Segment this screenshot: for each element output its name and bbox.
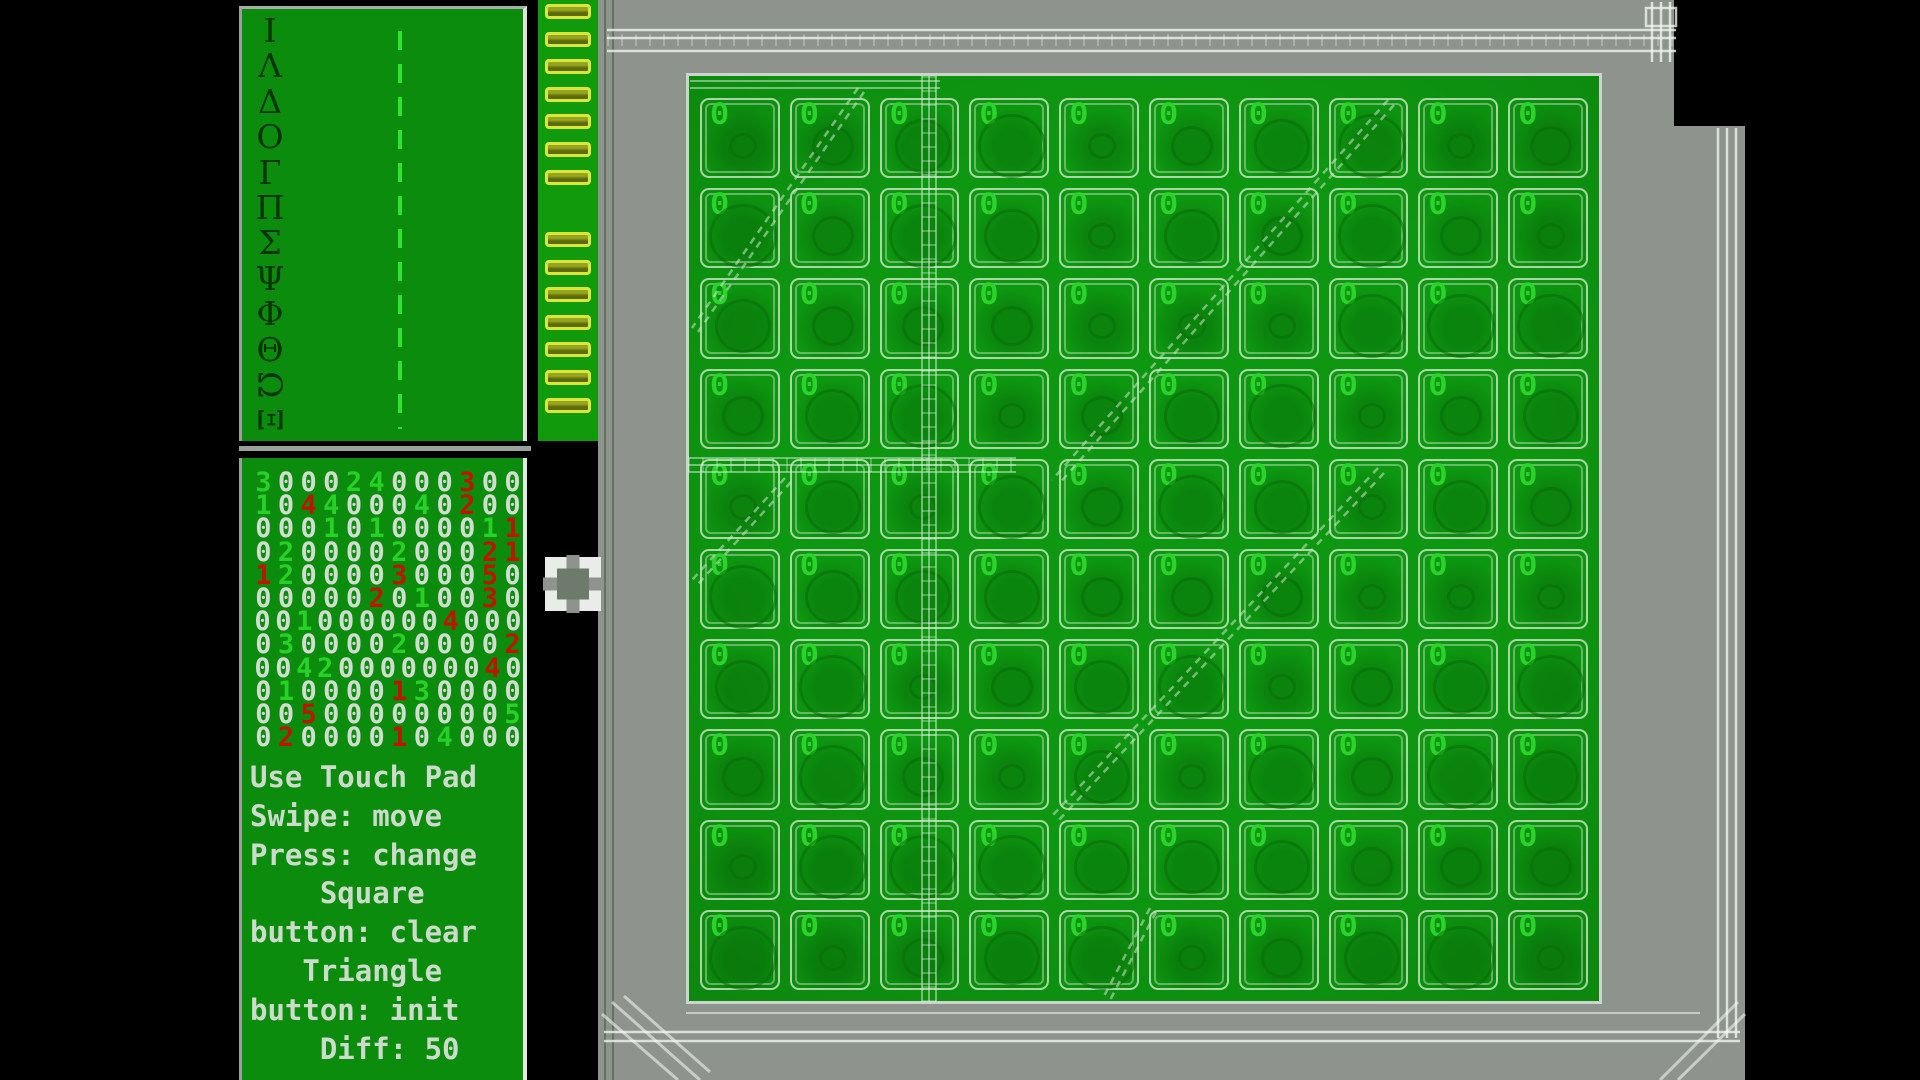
board-cell[interactable]: 0 — [790, 98, 870, 178]
board-cell[interactable]: 0 — [790, 278, 870, 358]
cell-value: 0 — [1518, 97, 1537, 134]
cell-ring — [1088, 223, 1116, 249]
cell-ring — [812, 216, 854, 256]
cell-ring — [889, 204, 957, 268]
cell-ring — [1178, 764, 1206, 790]
cell-ring — [709, 565, 777, 629]
board-cell[interactable]: 0 — [969, 549, 1049, 629]
board-cell[interactable]: 0 — [700, 729, 780, 809]
board-cell[interactable]: 0 — [1508, 639, 1588, 719]
cell-value: 0 — [1428, 368, 1447, 405]
connector-pin — [545, 287, 591, 302]
cell-value: 0 — [890, 909, 909, 946]
board-cell[interactable]: 0 — [1418, 820, 1498, 900]
board-cell[interactable]: 0 — [1149, 188, 1229, 268]
cell-ring — [819, 945, 847, 971]
board-cell[interactable]: 0 — [700, 98, 780, 178]
board-cell[interactable]: 0 — [1418, 729, 1498, 809]
cell-ring — [805, 480, 861, 534]
board-cell[interactable]: 0 — [969, 98, 1049, 178]
cell-value: 0 — [1428, 548, 1447, 585]
board-cell[interactable]: 0 — [700, 459, 780, 539]
cell-value: 0 — [1159, 728, 1178, 765]
cell-ring — [1427, 294, 1495, 358]
cell-ring — [1338, 114, 1406, 178]
greek-letter: Ω — [252, 367, 287, 403]
board-cell[interactable]: 0 — [880, 188, 960, 268]
board-cell[interactable]: 0 — [1239, 188, 1319, 268]
board-cell[interactable]: 0 — [1329, 910, 1409, 990]
cell-ring — [1261, 577, 1303, 617]
greek-letter: Ξ — [252, 402, 287, 438]
connector-pin — [545, 4, 591, 19]
board-cell[interactable]: 0 — [700, 639, 780, 719]
connector-pin — [545, 87, 591, 102]
cell-value: 0 — [1069, 187, 1088, 224]
board-cell[interactable]: 0 — [1059, 459, 1139, 539]
board-cell[interactable]: 0 — [1149, 910, 1229, 990]
board-cell[interactable]: 0 — [1149, 820, 1229, 900]
cell-value: 0 — [1249, 638, 1268, 675]
cell-ring — [1158, 475, 1226, 539]
board-cell[interactable]: 0 — [1508, 459, 1588, 539]
cell-ring — [1440, 216, 1482, 256]
cell-ring — [799, 745, 867, 809]
instruction-line: Diff: 50 — [250, 1030, 477, 1069]
board-cell[interactable]: 0 — [880, 549, 960, 629]
cell-ring — [895, 119, 951, 173]
board-cell[interactable]: 0 — [1329, 459, 1409, 539]
instruction-line: Swipe: move — [250, 797, 477, 836]
cell-value: 0 — [1249, 187, 1268, 224]
cell-ring — [805, 389, 861, 443]
board-cell[interactable]: 0 — [1059, 729, 1139, 809]
cell-ring — [1344, 931, 1400, 985]
cell-ring — [1178, 945, 1206, 971]
status-digit: 0 — [501, 726, 524, 749]
connector-pin — [545, 342, 591, 357]
board-cell[interactable]: 0 — [1059, 369, 1139, 449]
cell-ring — [998, 764, 1026, 790]
status-digit: 0 — [320, 726, 343, 749]
cell-ring — [1358, 584, 1386, 610]
connector-pin — [545, 315, 591, 330]
board-cell[interactable]: 0 — [1059, 549, 1139, 629]
cell-value: 0 — [1069, 458, 1088, 495]
board-cell[interactable]: 0 — [1059, 98, 1139, 178]
board-cell[interactable]: 0 — [1508, 729, 1588, 809]
board-cell[interactable]: 0 — [1239, 729, 1319, 809]
cell-ring — [715, 660, 771, 714]
cell-ring — [902, 306, 944, 346]
board-cell[interactable]: 0 — [969, 188, 1049, 268]
cell-ring — [909, 494, 937, 520]
board-cell[interactable]: 0 — [1508, 188, 1588, 268]
board-cell[interactable]: 0 — [1149, 729, 1229, 809]
board-cell[interactable]: 0 — [1329, 369, 1409, 449]
board-cell[interactable]: 0 — [1329, 639, 1409, 719]
cell-ring — [1351, 847, 1393, 887]
connector-pin — [545, 398, 591, 413]
cell-value: 0 — [890, 458, 909, 495]
greek-letter: Π — [252, 190, 288, 225]
board-cell[interactable]: 0 — [1059, 188, 1139, 268]
cell-ring — [909, 674, 937, 700]
connector-pin — [545, 170, 591, 185]
board-cell[interactable]: 0 — [969, 820, 1049, 900]
cell-value: 0 — [1249, 909, 1268, 946]
board-cell[interactable]: 0 — [1149, 369, 1229, 449]
connector-pin — [545, 232, 591, 247]
cell-value: 0 — [800, 97, 819, 134]
cell-ring — [1517, 294, 1585, 358]
cell-value: 0 — [800, 277, 819, 314]
cell-value: 0 — [710, 458, 729, 495]
cell-ring — [1530, 487, 1572, 527]
board-cell[interactable]: 0 — [880, 278, 960, 358]
cell-ring — [805, 570, 861, 624]
cell-value: 0 — [1249, 548, 1268, 585]
cell-value: 0 — [1339, 819, 1358, 856]
cell-ring — [1254, 840, 1310, 894]
touchpad-instructions: Use Touch PadSwipe: movePress: change Sq… — [250, 758, 477, 1068]
cell-value: 0 — [1518, 909, 1537, 946]
cell-value: 0 — [1518, 458, 1537, 495]
greek-letter: Φ — [252, 296, 288, 331]
cell-value: 0 — [1339, 638, 1358, 675]
cell-value: 0 — [890, 277, 909, 314]
cell-value: 0 — [1069, 368, 1088, 405]
digit-row: 020000104000 — [252, 726, 524, 749]
game-board: 0000000000000000000000000000000000000000… — [686, 73, 1602, 1004]
cell-ring — [1447, 133, 1475, 159]
cell-ring — [902, 938, 944, 978]
cell-value: 0 — [979, 638, 998, 675]
board-cell[interactable]: 0 — [969, 639, 1049, 719]
board-cell[interactable]: 0 — [1239, 549, 1319, 629]
cell-value: 0 — [1159, 277, 1178, 314]
cell-value: 0 — [1339, 458, 1358, 495]
board-cell[interactable]: 0 — [1508, 549, 1588, 629]
board-cell[interactable]: 0 — [1418, 278, 1498, 358]
cell-ring — [799, 655, 867, 719]
dashed-divider-line — [398, 31, 402, 429]
cell-ring — [1440, 396, 1482, 436]
greek-letter: Θ — [252, 332, 288, 367]
instruction-line: button: init — [250, 991, 477, 1030]
cell-value: 0 — [800, 187, 819, 224]
selection-bracket-icon[interactable] — [545, 557, 601, 611]
cell-ring — [1171, 577, 1213, 617]
board-cell[interactable]: 0 — [790, 459, 870, 539]
cell-ring — [1074, 840, 1130, 894]
board-cell[interactable]: 0 — [1149, 459, 1229, 539]
cell-value: 0 — [710, 97, 729, 134]
board-cell[interactable]: 0 — [1329, 729, 1409, 809]
cell-value: 0 — [1428, 97, 1447, 134]
board-cell[interactable]: 0 — [880, 459, 960, 539]
instruction-line: Triangle — [250, 952, 477, 991]
cell-value: 0 — [1159, 909, 1178, 946]
cell-ring — [902, 757, 944, 797]
board-cell[interactable]: 0 — [1329, 98, 1409, 178]
board-cell[interactable]: 0 — [1239, 639, 1319, 719]
cell-ring — [1517, 655, 1585, 719]
cell-ring — [1427, 926, 1495, 990]
board-cell[interactable]: 0 — [1149, 98, 1229, 178]
cell-value: 0 — [1069, 97, 1088, 134]
greek-letter: Σ — [252, 225, 288, 260]
board-cell[interactable]: 0 — [790, 639, 870, 719]
cell-ring — [1248, 745, 1316, 809]
board-cell[interactable]: 0 — [790, 910, 870, 990]
cell-value: 0 — [1249, 277, 1268, 314]
connector-pin — [545, 59, 591, 74]
cell-value: 0 — [710, 819, 729, 856]
board-cell[interactable]: 0 — [1059, 820, 1139, 900]
status-digit: 2 — [275, 726, 298, 749]
cell-ring — [812, 306, 854, 346]
cell-ring — [1523, 750, 1579, 804]
connector-pin — [545, 114, 591, 129]
cell-value: 0 — [979, 368, 998, 405]
cell-ring — [812, 126, 854, 166]
cell-ring — [1433, 480, 1489, 534]
board-cell[interactable]: 0 — [880, 820, 960, 900]
status-digit: 0 — [456, 726, 479, 749]
status-digit: 0 — [411, 726, 434, 749]
cell-ring — [978, 835, 1046, 899]
cell-value: 0 — [800, 909, 819, 946]
board-cell[interactable]: 0 — [1329, 278, 1409, 358]
board-cell[interactable]: 0 — [1418, 459, 1498, 539]
cell-ring — [978, 114, 1046, 178]
board-cell[interactable]: 0 — [1239, 910, 1319, 990]
connector-pin — [545, 32, 591, 47]
board-cell[interactable]: 0 — [1239, 278, 1319, 358]
board-cell[interactable]: 0 — [700, 278, 780, 358]
status-digit: 0 — [365, 726, 388, 749]
board-cell[interactable]: 0 — [1508, 820, 1588, 900]
cell-ring — [1358, 494, 1386, 520]
cell-ring — [1537, 945, 1565, 971]
cell-ring — [1248, 384, 1316, 448]
cell-value: 0 — [1339, 728, 1358, 765]
board-cell[interactable]: 0 — [1149, 549, 1229, 629]
cell-ring — [984, 209, 1040, 263]
board-cell[interactable]: 0 — [1149, 278, 1229, 358]
board-cell[interactable]: 0 — [1508, 369, 1588, 449]
cell-ring — [709, 926, 777, 990]
cell-value: 0 — [890, 728, 909, 765]
cell-ring — [1164, 840, 1220, 894]
cell-ring — [1338, 294, 1406, 358]
cell-ring — [984, 931, 1040, 985]
board-cell[interactable]: 0 — [880, 98, 960, 178]
greek-letter: Ι — [252, 13, 288, 48]
board-cell[interactable]: 0 — [1149, 639, 1229, 719]
board-cell[interactable]: 0 — [1329, 820, 1409, 900]
status-digit: 4 — [433, 726, 456, 749]
board-cell[interactable]: 0 — [1418, 188, 1498, 268]
cell-ring — [1068, 926, 1136, 990]
board-cell[interactable]: 0 — [700, 820, 780, 900]
cell-ring — [729, 494, 757, 520]
cell-ring — [1268, 313, 1296, 339]
cell-ring — [1074, 750, 1130, 804]
cell-ring — [729, 133, 757, 159]
board-cell[interactable]: 0 — [880, 639, 960, 719]
cell-value: 0 — [1339, 368, 1358, 405]
cell-ring — [1433, 660, 1489, 714]
board-cell[interactable]: 0 — [790, 729, 870, 809]
board-cell[interactable]: 0 — [969, 459, 1049, 539]
board-cell[interactable]: 0 — [1418, 369, 1498, 449]
cell-value: 0 — [1159, 548, 1178, 585]
cell-value: 0 — [710, 368, 729, 405]
cell-ring — [1537, 584, 1565, 610]
cell-ring — [1447, 584, 1475, 610]
cell-ring — [1081, 577, 1123, 617]
status-digit: 1 — [388, 726, 411, 749]
board-cell[interactable]: 0 — [790, 369, 870, 449]
cell-ring — [722, 396, 764, 436]
status-digit: 0 — [479, 726, 502, 749]
cell-ring — [799, 835, 867, 899]
game-screen: ΙΛΔΟΓΠΣΨΦΘΩΞ 300024000300104400040200000… — [0, 0, 1920, 1080]
cell-ring — [978, 475, 1046, 539]
cell-ring — [1088, 313, 1116, 339]
cell-ring — [889, 835, 957, 899]
board-cell[interactable]: 0 — [1508, 278, 1588, 358]
board-cell[interactable]: 0 — [1418, 910, 1498, 990]
board-cell[interactable]: 0 — [790, 820, 870, 900]
connector-pin — [545, 260, 591, 275]
board-cell[interactable]: 0 — [1329, 188, 1409, 268]
cell-ring — [895, 570, 951, 624]
cell-ring — [1261, 938, 1303, 978]
board-cell[interactable]: 0 — [700, 910, 780, 990]
cell-ring — [1530, 126, 1572, 166]
cell-value: 0 — [710, 728, 729, 765]
cell-value: 0 — [979, 277, 998, 314]
cell-ring — [1081, 396, 1123, 436]
bracket-center — [557, 569, 589, 600]
cell-ring — [984, 570, 1040, 624]
board-cell[interactable]: 0 — [1508, 98, 1588, 178]
board-cell[interactable]: 0 — [790, 549, 870, 629]
status-digit: 0 — [297, 726, 320, 749]
cell-ring — [1427, 745, 1495, 809]
cell-value: 0 — [1069, 277, 1088, 314]
board-cell[interactable]: 0 — [1418, 549, 1498, 629]
board-cell[interactable]: 0 — [700, 188, 780, 268]
board-cell[interactable]: 0 — [969, 369, 1049, 449]
cell-value: 0 — [890, 638, 909, 675]
board-cell[interactable]: 0 — [700, 549, 780, 629]
cell-ring — [1164, 389, 1220, 443]
instruction-line: Square — [250, 874, 477, 913]
board-cell[interactable]: 0 — [700, 369, 780, 449]
cell-ring — [1171, 126, 1213, 166]
corner-notch — [1674, 0, 1920, 126]
cell-value: 0 — [1518, 819, 1537, 856]
cell-value: 0 — [1518, 548, 1537, 585]
board-cell[interactable]: 0 — [1059, 278, 1139, 358]
connector-pin — [545, 142, 591, 157]
board-cell[interactable]: 0 — [969, 910, 1049, 990]
cell-ring — [991, 306, 1033, 346]
board-cell[interactable]: 0 — [1418, 98, 1498, 178]
cell-ring — [715, 299, 771, 353]
board-cell[interactable]: 0 — [880, 729, 960, 809]
board-cell[interactable]: 0 — [1239, 820, 1319, 900]
cell-ring — [1074, 660, 1130, 714]
cell-ring — [729, 854, 757, 880]
cell-ring — [1351, 757, 1393, 797]
cell-ring — [1164, 209, 1220, 263]
cell-ring — [1537, 223, 1565, 249]
cell-ring — [1351, 667, 1393, 707]
cell-ring — [889, 384, 957, 448]
connector-pin — [545, 370, 591, 385]
board-cell[interactable]: 0 — [790, 188, 870, 268]
letters-panel: ΙΛΔΟΓΠΣΨΦΘΩΞ — [239, 6, 527, 441]
cell-ring — [1088, 133, 1116, 159]
board-cell[interactable]: 0 — [880, 910, 960, 990]
cell-value: 0 — [979, 728, 998, 765]
cell-value: 0 — [1518, 187, 1537, 224]
cell-value: 0 — [1159, 97, 1178, 134]
cell-value: 0 — [1428, 187, 1447, 224]
board-cell[interactable]: 0 — [1239, 369, 1319, 449]
board-cell[interactable]: 0 — [969, 729, 1049, 809]
board-cell[interactable]: 0 — [1329, 549, 1409, 629]
greek-letter: Ο — [252, 119, 288, 154]
greek-letter: Ψ — [252, 261, 288, 296]
cell-ring — [1530, 847, 1572, 887]
cell-ring — [1178, 313, 1206, 339]
status-digit: 0 — [252, 726, 275, 749]
panel-divider — [239, 446, 531, 451]
board-cell[interactable]: 0 — [969, 278, 1049, 358]
board-cell[interactable]: 0 — [1418, 639, 1498, 719]
cell-ring — [1254, 119, 1310, 173]
instruction-line: Use Touch Pad — [250, 758, 477, 797]
board-cell[interactable]: 0 — [1239, 98, 1319, 178]
greek-letter: Δ — [252, 84, 288, 119]
cell-ring — [1523, 389, 1579, 443]
board-cell[interactable]: 0 — [1059, 910, 1139, 990]
greek-letter: Λ — [252, 48, 288, 83]
cell-ring — [1358, 403, 1386, 429]
greek-letter: Γ — [252, 155, 288, 190]
board-cell[interactable]: 0 — [880, 369, 960, 449]
board-cell[interactable]: 0 — [1059, 639, 1139, 719]
instruction-line: button: clear — [250, 913, 477, 952]
board-cells: 0000000000000000000000000000000000000000… — [695, 93, 1593, 995]
cell-value: 0 — [1428, 819, 1447, 856]
cell-ring — [1254, 480, 1310, 534]
cell-ring — [722, 757, 764, 797]
cell-ring — [1158, 655, 1226, 719]
board-cell[interactable]: 0 — [1239, 459, 1319, 539]
cell-ring — [1261, 216, 1303, 256]
edge-connector — [538, 0, 598, 441]
board-cell[interactable]: 0 — [1508, 910, 1588, 990]
cell-ring — [998, 403, 1026, 429]
cell-ring — [1338, 204, 1406, 268]
